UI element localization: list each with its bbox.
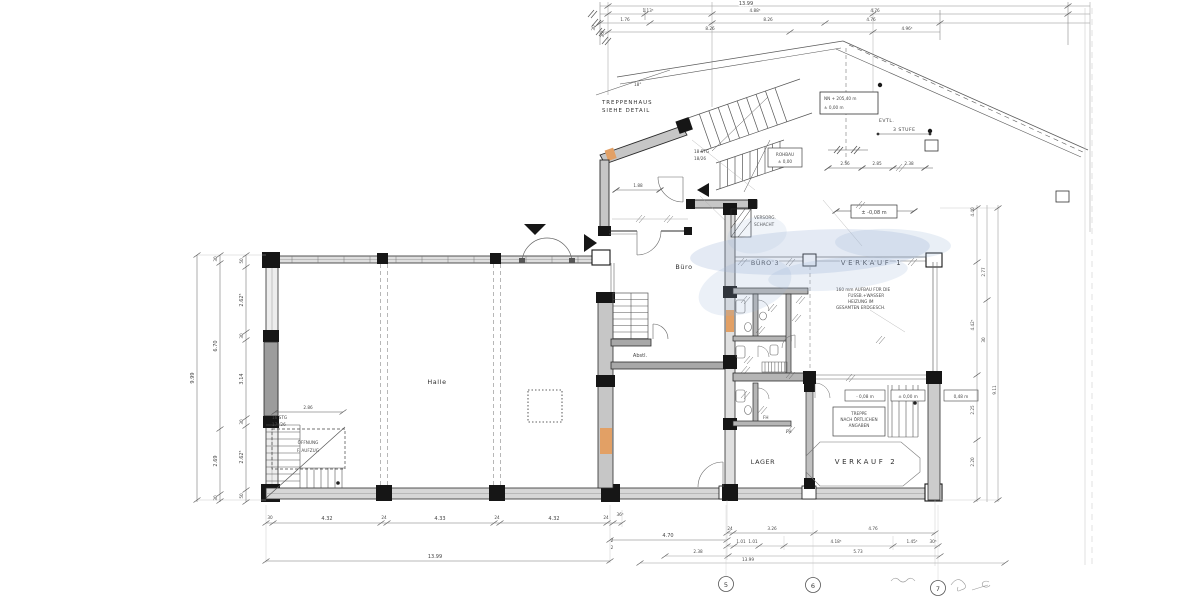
orange-wall-infill — [600, 428, 612, 454]
treppe-note-line3: ANGABEN — [849, 423, 870, 428]
stair-count-label-line2: 17⁵/26 — [272, 422, 286, 427]
entrance-arrow-down-icon — [524, 224, 546, 235]
dim-label: 50 — [239, 493, 244, 499]
rohbau-line1: ROHBAU — [776, 152, 794, 157]
fh-label: FH — [763, 415, 769, 420]
dim-label: 3.26 — [767, 526, 777, 531]
dim-label: 4.42⁵ — [970, 319, 975, 330]
dim-label: 24 — [603, 515, 609, 520]
dim-label: 2.86 — [303, 405, 313, 410]
dim-label: 4.70 — [662, 533, 673, 539]
room-label-halle: Halle — [427, 378, 446, 386]
heizung-note-line2: FUSSB.+WASSER — [848, 293, 884, 298]
stair-count-label-line1: 16 STG — [272, 415, 287, 420]
oeffnung-label-line2: F. AUFZUG — [297, 448, 319, 453]
dim-label: 24 — [381, 515, 387, 520]
dim-label: 30 — [591, 25, 596, 31]
fh-label: FH — [786, 429, 792, 434]
right-dimension-labels: 4.40 2.77 4.42⁵ 30 2.25 9.11 2.20 — [970, 207, 997, 467]
dim-label: 4.76 — [870, 8, 880, 13]
ceiling-opening-dotted — [528, 390, 562, 422]
dim-label: 1.13⁵ — [642, 8, 653, 13]
dim-label: 36⁵ — [616, 512, 623, 517]
nn-level-line1: NN + 205,40 m — [824, 96, 857, 101]
treppenhaus-note-line1: TREPPENHAUS — [601, 100, 653, 106]
dim-label: 2.62⁵ — [239, 450, 245, 463]
wc-doors — [758, 300, 830, 399]
dim-label: 8.26 — [705, 26, 715, 31]
treppenhaus-note-line2: SIEHE DETAIL — [602, 108, 650, 114]
heizung-note-line3: HEIZUNG IM — [848, 299, 874, 304]
dim-label: 5.73 — [853, 549, 863, 554]
treppe-note-line2: NACH ÖRTLICHEN — [840, 417, 877, 422]
dim-label: 4.96⁵ — [901, 26, 912, 31]
dim-label: 4.76 — [868, 526, 878, 531]
dim-label: 6.70 — [213, 340, 219, 351]
evtl-note-line1: EVTL. — [879, 118, 894, 124]
dim-label: 2 — [611, 545, 614, 550]
entrance-arrow-right-icon — [584, 234, 597, 252]
dim-label: 13.99 — [739, 1, 753, 7]
dim-label: 2.69 — [213, 455, 219, 466]
angle-label: 18° — [634, 82, 641, 87]
dim-label: 9.99 — [190, 372, 196, 383]
dim-label: 2 — [611, 538, 614, 543]
dim-label: 13.99 — [742, 557, 754, 562]
dim-label: 24 — [727, 526, 733, 531]
dim-label: 1.88 — [633, 183, 643, 188]
screed-hatch — [762, 362, 787, 372]
grid-bubble-5: 5 — [724, 581, 728, 589]
dim-label: 4.32 — [321, 516, 332, 522]
dim-label: 30 — [267, 515, 273, 520]
wc-block — [733, 288, 830, 489]
dim-label: 4.76 — [866, 17, 876, 22]
room-label-abstell: Abstl. — [633, 353, 648, 359]
dim-label: 2.38 — [904, 161, 914, 166]
left-dimension-labels: 9.99 30 6.70 2.69 30 50 2.62⁵ 30 3.14 30… — [190, 256, 245, 501]
dim-label: 1.01 — [736, 539, 746, 544]
dim-label: 1.01 — [748, 539, 758, 544]
grid-bubble-6: 6 — [811, 582, 815, 590]
stair-flight-upper — [688, 79, 812, 152]
dim-label: 30 — [239, 419, 244, 425]
dim-label: 30 — [981, 337, 986, 343]
room-label-buero: Büro — [675, 263, 692, 271]
bottom-dimension-chains — [263, 500, 1009, 566]
dim-label: 24 — [494, 515, 500, 520]
dim-label: 3.14 — [239, 373, 245, 384]
treppe-note-line1: TREPPE — [850, 411, 867, 416]
level-annotations-top: NN + 205,40 m ± 0,00 m EVTL. 3 STUFE 2.5… — [820, 92, 931, 218]
entrance-texts: TREPPENHAUS SIEHE DETAIL 18° 18 STG 18/2… — [601, 82, 802, 188]
evtl-note-line2: 3 STUFE — [893, 127, 916, 133]
grid-bubble-7: 7 — [936, 585, 940, 593]
dim-label: 4.88⁵ — [749, 8, 760, 13]
right-dimension-chains — [940, 8, 1092, 565]
dim-label: 2.85 — [872, 161, 882, 166]
room-label-verkauf2: VERKAUF 2 — [835, 458, 898, 466]
room-label-lager: LAGER — [751, 458, 775, 466]
level-label: - 0,08 m — [856, 394, 874, 399]
entrance-arrow-icon — [697, 183, 709, 197]
dim-label: 2.25 — [970, 405, 975, 415]
dim-label: 2.62⁵ — [239, 293, 245, 306]
buero-stair — [613, 293, 648, 345]
dim-label: 2.20 — [970, 457, 975, 467]
heizung-note-line4: GESAMTEN ERDGESCH. — [836, 305, 885, 310]
dim-label: 2.77 — [981, 267, 986, 277]
dim-label: 4.33 — [434, 516, 445, 522]
dim-label: 30⁵ — [929, 539, 936, 544]
dim-label: 4.32 — [548, 516, 559, 522]
dim-label: 30 — [213, 256, 218, 262]
floor-plan-drawing: 13.99 1.13⁵ 4.88⁵ 4.76 1.76 8.26 4.76 8.… — [0, 0, 1200, 600]
dim-label: 50 — [239, 258, 244, 264]
dim-label: 4.18⁵ — [830, 539, 841, 544]
stair-count-label-line2: 18/26 — [694, 156, 706, 161]
oeffnung-label-line1: ÖFFNUNG — [298, 440, 319, 445]
dim-label: 4.40 — [970, 207, 975, 217]
dim-label: 2.38 — [693, 549, 703, 554]
dim-label: 2.56 — [840, 161, 850, 166]
dim-label: 30 — [239, 333, 244, 339]
bottom-dimension-labels: 30 4.32 24 4.33 24 4.32 24 36⁵ 2 2 13.99… — [267, 512, 936, 562]
dim-label: 13.99 — [428, 554, 442, 560]
handwritten-scribble — [891, 578, 990, 591]
dim-label: 1.76 — [620, 17, 630, 22]
nn-level-line2: ± 0,00 m — [824, 105, 844, 110]
rohbau-level-box — [768, 148, 802, 167]
dim-label: 36⁵ — [600, 30, 605, 37]
dim-label: 1.45⁵ — [906, 539, 917, 544]
floor-plan-sheet: 13.99 1.13⁵ 4.88⁵ 4.76 1.76 8.26 4.76 8.… — [0, 0, 1200, 600]
level-label: ± -0,08 m — [861, 210, 886, 216]
dim-label: 9.11 — [992, 385, 997, 395]
dim-label: 30 — [213, 495, 218, 501]
stair-count-label-line1: 18 STG — [694, 149, 709, 154]
level-label: ± 0,00 m — [898, 394, 918, 399]
level-label: 0,48 m — [954, 394, 969, 399]
rohbau-line2: ± 0,00 — [778, 159, 792, 164]
dim-label: 8.26 — [763, 17, 773, 22]
